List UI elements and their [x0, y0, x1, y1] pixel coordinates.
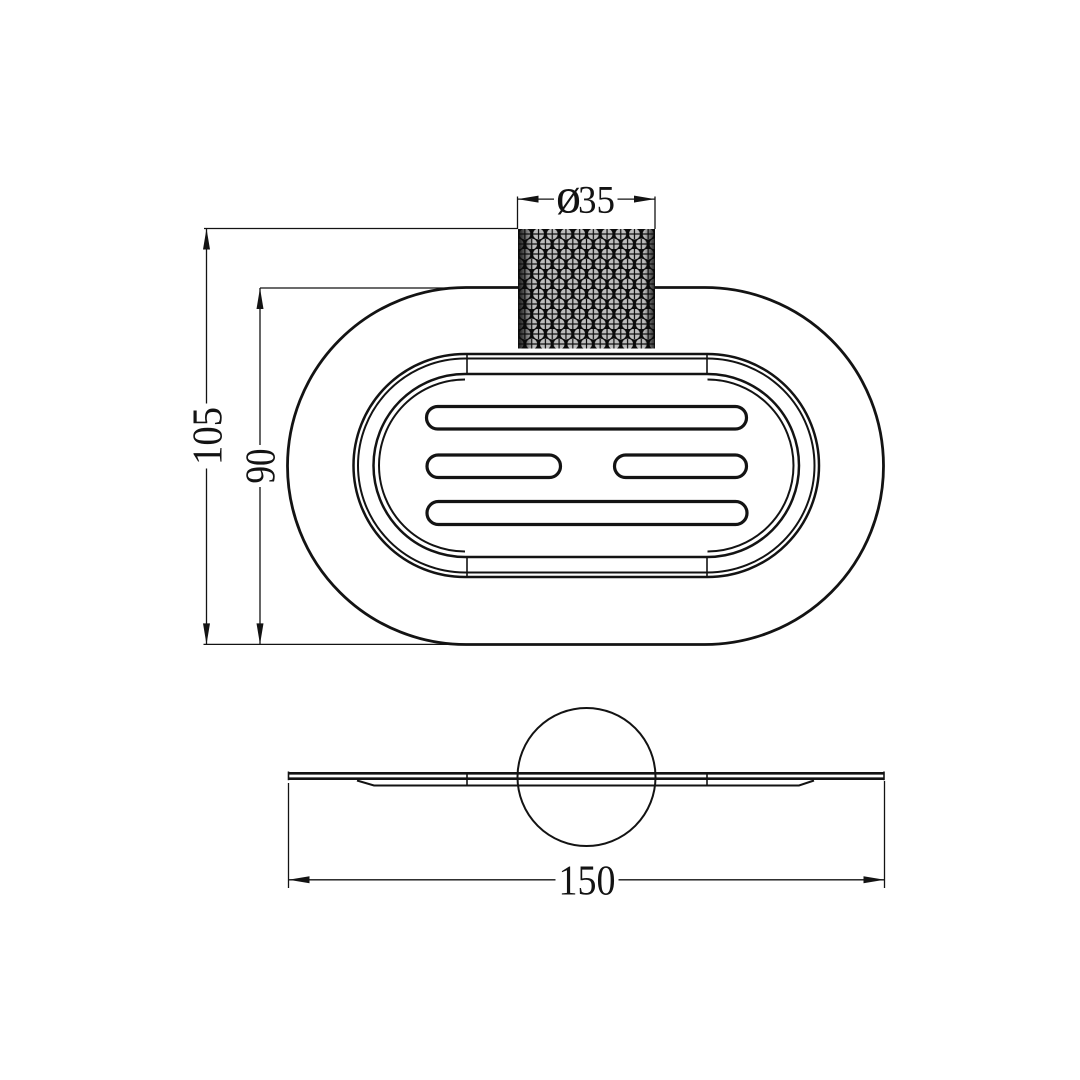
svg-text:35: 35 — [578, 178, 615, 222]
svg-text:90: 90 — [238, 449, 284, 484]
svg-text:150: 150 — [559, 859, 616, 905]
svg-text:105: 105 — [185, 407, 231, 465]
